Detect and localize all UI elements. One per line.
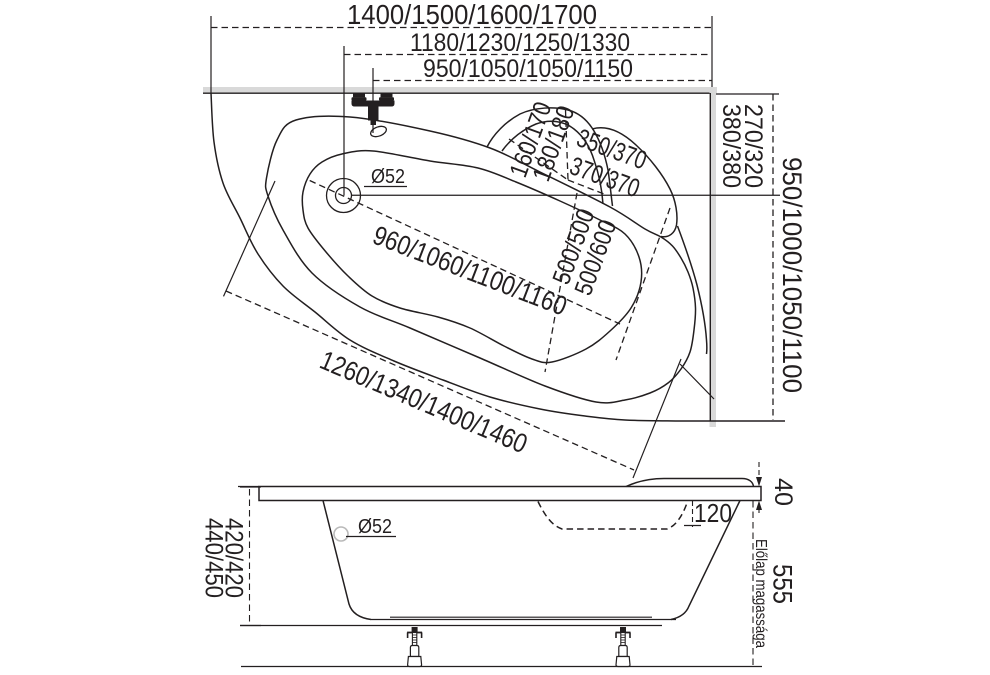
svg-text:555: 555 bbox=[768, 564, 798, 604]
svg-text:950/1050/1050/1150: 950/1050/1050/1150 bbox=[423, 55, 633, 83]
svg-text:120: 120 bbox=[694, 498, 732, 528]
svg-text:960/1060/1100/1160: 960/1060/1100/1160 bbox=[369, 220, 571, 321]
svg-text:Előlap magassága: Előlap magassága bbox=[752, 539, 769, 648]
svg-text:1260/1340/1400/1460: 1260/1340/1400/1460 bbox=[316, 345, 532, 459]
svg-text:40: 40 bbox=[769, 478, 797, 506]
svg-text:380/380: 380/380 bbox=[717, 104, 745, 188]
svg-text:440/450: 440/450 bbox=[200, 518, 228, 598]
svg-text:Ø52: Ø52 bbox=[371, 166, 405, 188]
svg-text:1400/1500/1600/1700: 1400/1500/1600/1700 bbox=[347, 0, 597, 30]
svg-text:1180/1230/1250/1330: 1180/1230/1250/1330 bbox=[410, 29, 630, 57]
svg-text:Ø52: Ø52 bbox=[358, 516, 392, 538]
svg-text:950/1000/1050/1100: 950/1000/1050/1100 bbox=[777, 157, 807, 393]
